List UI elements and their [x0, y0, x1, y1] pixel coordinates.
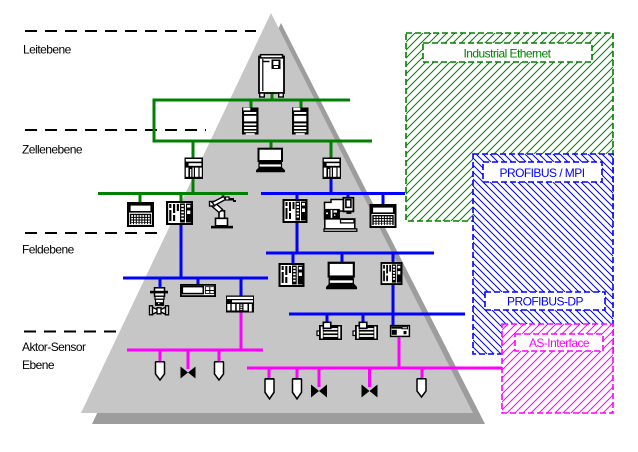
svg-text:Leitebene: Leitebene [23, 43, 72, 57]
svg-text:Feldebene: Feldebene [22, 243, 75, 257]
svg-text:AS-Interface: AS-Interface [529, 336, 590, 350]
svg-text:PROFIBUS / MPI: PROFIBUS / MPI [500, 166, 585, 180]
svg-text:PROFIBUS-DP: PROFIBUS-DP [507, 295, 584, 309]
svg-text:Zellenebene: Zellenebene [22, 143, 83, 157]
svg-text:Ebene: Ebene [22, 358, 55, 372]
svg-text:Industrial Ethernet: Industrial Ethernet [464, 47, 552, 61]
svg-text:Aktor-Sensor: Aktor-Sensor [22, 340, 86, 354]
